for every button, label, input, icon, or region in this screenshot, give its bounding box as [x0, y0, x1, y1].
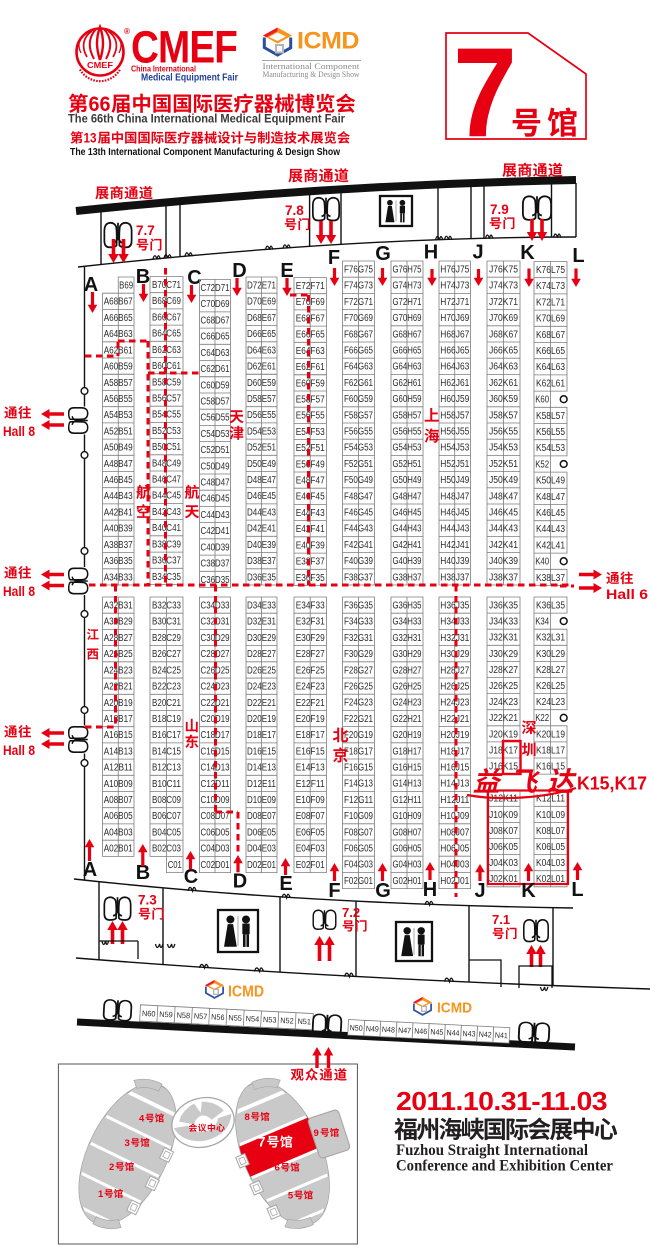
svg-text:N58: N58	[176, 1011, 190, 1021]
svg-text:J58K57: J58K57	[489, 410, 518, 421]
svg-text:J40K39: J40K39	[489, 556, 518, 567]
svg-text:K52: K52	[535, 459, 549, 470]
svg-text:E18F17: E18F17	[296, 730, 325, 741]
svg-text:K76L75: K76L75	[536, 265, 565, 276]
svg-text:D08E07: D08E07	[247, 811, 276, 822]
svg-text:F40G39: F40G39	[344, 556, 373, 567]
svg-text:ICMD: ICMD	[437, 1000, 472, 1017]
svg-text:J42K41: J42K41	[489, 540, 518, 551]
svg-text:7.8: 7.8	[285, 203, 304, 218]
svg-text:E: E	[279, 873, 292, 895]
svg-text:B30C31: B30C31	[152, 617, 181, 628]
svg-text:B18C19: B18C19	[152, 714, 181, 725]
svg-text:F: F	[328, 880, 340, 902]
svg-text:G70H69: G70H69	[393, 313, 422, 324]
svg-text:G30H29: G30H29	[393, 649, 422, 660]
svg-text:F68G67: F68G67	[344, 329, 373, 340]
svg-text:E44F43: E44F43	[296, 508, 325, 519]
svg-text:G74H73: G74H73	[393, 281, 422, 292]
svg-text:D52E51: D52E51	[247, 443, 276, 454]
svg-text:K60: K60	[535, 395, 549, 406]
svg-text:G46H45: G46H45	[393, 508, 422, 519]
svg-text:E10F09: E10F09	[296, 795, 325, 806]
svg-text:J20K19: J20K19	[489, 729, 518, 740]
svg-text:A32B31: A32B31	[104, 601, 133, 612]
svg-text:E36F35: E36F35	[296, 573, 325, 584]
svg-text:1: 1	[98, 1189, 104, 1200]
svg-text:F42G41: F42G41	[344, 540, 373, 551]
svg-text:J70K69: J70K69	[489, 313, 518, 324]
svg-text:K08L07: K08L07	[536, 826, 565, 837]
svg-text:C42D41: C42D41	[201, 526, 230, 537]
svg-text:G58H57: G58H57	[393, 410, 422, 421]
svg-text:C70D69: C70D69	[201, 299, 230, 310]
svg-text:9: 9	[314, 1128, 319, 1139]
svg-text:H42J41: H42J41	[440, 540, 469, 551]
svg-text:K72L71: K72L71	[536, 297, 565, 308]
svg-text:B04C05: B04C05	[152, 827, 181, 838]
svg-text:H66J65: H66J65	[440, 346, 469, 357]
svg-text:A64B63: A64B63	[104, 329, 133, 340]
svg-text:K20L19: K20L19	[536, 729, 565, 740]
svg-text:B16C17: B16C17	[152, 730, 181, 741]
svg-text:K: K	[521, 880, 536, 902]
svg-text:J64K63: J64K63	[489, 362, 518, 373]
svg-text:The 13th International Compone: The 13th International Component Manufac…	[70, 147, 341, 158]
svg-text:C40D39: C40D39	[201, 542, 230, 553]
svg-text:K64L63: K64L63	[536, 362, 565, 373]
svg-text:A28B27: A28B27	[104, 633, 133, 644]
svg-text:D18E17: D18E17	[247, 730, 276, 741]
svg-text:D68E67: D68E67	[247, 313, 276, 324]
svg-text:Medical Equipment Fair: Medical Equipment Fair	[141, 73, 238, 84]
svg-text:G24H23: G24H23	[393, 698, 422, 709]
svg-text:H: H	[424, 242, 438, 264]
svg-text:B14C15: B14C15	[152, 746, 181, 757]
svg-text:7.2: 7.2	[342, 905, 360, 920]
svg-text:F52G51: F52G51	[344, 459, 373, 470]
svg-text:7: 7	[453, 21, 517, 163]
svg-text:E40F39: E40F39	[296, 540, 325, 551]
svg-text:D66E65: D66E65	[247, 329, 276, 340]
svg-text:N43: N43	[462, 1029, 475, 1039]
svg-text:E68F67: E68F67	[296, 313, 325, 324]
svg-text:B10C11: B10C11	[152, 779, 181, 790]
svg-text:C72D71: C72D71	[201, 283, 230, 294]
svg-text:E54F53: E54F53	[296, 427, 325, 438]
svg-text:ICMD: ICMD	[228, 984, 264, 1001]
svg-text:F16G15: F16G15	[344, 763, 373, 774]
svg-text:A66B65: A66B65	[104, 313, 133, 324]
svg-text:D14E13: D14E13	[247, 763, 276, 774]
svg-text:F54G53: F54G53	[344, 443, 373, 454]
svg-text:D62E61: D62E61	[247, 362, 276, 373]
svg-text:A20B19: A20B19	[104, 698, 133, 709]
svg-text:D06E05: D06E05	[247, 827, 276, 838]
svg-text:B32C33: B32C33	[152, 601, 181, 612]
svg-text:C38D37: C38D37	[201, 559, 230, 570]
svg-text:D54E53: D54E53	[247, 426, 276, 437]
svg-text:A46B45: A46B45	[104, 475, 133, 486]
svg-text:D28E27: D28E27	[247, 649, 276, 660]
svg-text:K32L31: K32L31	[536, 633, 565, 644]
svg-text:D46E45: D46E45	[247, 491, 276, 502]
svg-text:N44: N44	[446, 1028, 460, 1038]
svg-text:J26K25: J26K25	[489, 681, 518, 692]
svg-text:®: ®	[124, 27, 130, 36]
svg-text:G28H27: G28H27	[393, 665, 422, 676]
svg-text:J54K53: J54K53	[489, 443, 518, 454]
svg-text:ICMD: ICMD	[297, 28, 359, 55]
svg-text:A52B51: A52B51	[104, 426, 133, 437]
svg-text:F20G19: F20G19	[344, 730, 373, 741]
svg-text:7.3: 7.3	[138, 893, 157, 908]
svg-text:A48B47: A48B47	[104, 459, 133, 470]
svg-text:7: 7	[258, 1135, 266, 1150]
svg-text:J08K07: J08K07	[489, 826, 518, 837]
svg-text:J36K35: J36K35	[489, 600, 518, 611]
svg-text:D16E15: D16E15	[247, 746, 276, 757]
svg-text:D32E31: D32E31	[247, 617, 276, 628]
svg-text:E32F31: E32F31	[296, 617, 325, 628]
svg-text:L: L	[571, 879, 583, 901]
svg-text:C66D65: C66D65	[201, 332, 230, 343]
svg-text:K40: K40	[535, 557, 549, 568]
svg-text:G76H75: G76H75	[393, 265, 422, 276]
svg-text:13: 13	[84, 130, 97, 146]
svg-text:K24L23: K24L23	[536, 697, 565, 708]
svg-text:G36H35: G36H35	[393, 601, 422, 612]
svg-text:K06L05: K06L05	[536, 842, 565, 853]
svg-text:A56B55: A56B55	[104, 394, 133, 405]
svg-text:H56J55: H56J55	[440, 427, 469, 438]
svg-text:L: L	[572, 245, 584, 267]
svg-text:A12B11: A12B11	[104, 763, 133, 774]
svg-text:E08F07: E08F07	[296, 811, 325, 822]
svg-text:N45: N45	[430, 1027, 444, 1037]
svg-text:D: D	[232, 260, 246, 282]
svg-text:J60K59: J60K59	[489, 394, 518, 405]
svg-text:Hall 8: Hall 8	[3, 743, 35, 758]
svg-text:E28F27: E28F27	[296, 649, 325, 660]
svg-text:J38K37: J38K37	[489, 572, 518, 583]
svg-text:E24F23: E24F23	[296, 682, 325, 693]
svg-text:F12G11: F12G11	[344, 795, 373, 806]
svg-text:E02F01: E02F01	[296, 860, 325, 871]
svg-text:K46L45: K46L45	[536, 508, 565, 519]
svg-text:H50J49: H50J49	[440, 475, 469, 486]
svg-text:D64E63: D64E63	[247, 345, 276, 356]
svg-text:B02C03: B02C03	[152, 844, 181, 855]
svg-text:7.7: 7.7	[136, 223, 155, 238]
svg-text:G12H11: G12H11	[393, 795, 422, 806]
svg-text:B22C23: B22C23	[152, 682, 181, 693]
svg-text:A50B49: A50B49	[104, 443, 133, 454]
svg-text:J10K09: J10K09	[489, 810, 518, 821]
svg-text:H58J57: H58J57	[440, 410, 469, 421]
svg-text:E26F25: E26F25	[296, 665, 325, 676]
svg-text:D22E21: D22E21	[247, 698, 276, 709]
svg-text:G66H65: G66H65	[393, 346, 422, 357]
svg-text:A16B15: A16B15	[104, 730, 133, 741]
svg-text:K34: K34	[535, 617, 549, 628]
svg-text:A02B01: A02B01	[104, 844, 133, 855]
svg-text:H74J73: H74J73	[440, 281, 469, 292]
svg-text:E66F65: E66F65	[296, 330, 325, 341]
svg-text:F56G55: F56G55	[344, 427, 373, 438]
svg-text:K26L25: K26L25	[536, 681, 565, 692]
svg-text:E12F11: E12F11	[296, 779, 325, 790]
svg-text:F18G17: F18G17	[344, 746, 373, 757]
svg-text:B26C27: B26C27	[152, 649, 181, 660]
svg-text:D56E55: D56E55	[247, 410, 276, 421]
svg-text:Hall 8: Hall 8	[3, 424, 35, 439]
svg-text:F10G09: F10G09	[344, 811, 373, 822]
svg-text:J68K67: J68K67	[489, 329, 518, 340]
svg-text:Manufacturing & Design Show: Manufacturing & Design Show	[263, 69, 361, 79]
svg-text:N55: N55	[228, 1013, 243, 1023]
svg-text:C68D67: C68D67	[201, 315, 230, 326]
svg-text:N53: N53	[263, 1015, 277, 1025]
svg-text:J50K49: J50K49	[489, 475, 518, 486]
svg-text:E04F03: E04F03	[296, 844, 325, 855]
svg-text:F24G23: F24G23	[344, 698, 373, 709]
svg-text:H44J43: H44J43	[440, 524, 469, 535]
svg-text:E60F59: E60F59	[296, 378, 325, 389]
svg-text:G02H01: G02H01	[393, 876, 422, 887]
svg-text:G48H47: G48H47	[393, 491, 422, 502]
svg-text:F34G33: F34G33	[344, 617, 373, 628]
svg-text:A42B41: A42B41	[104, 507, 133, 518]
svg-text:F08G07: F08G07	[344, 827, 373, 838]
svg-text:B12C13: B12C13	[152, 763, 181, 774]
svg-text:G06H05: G06H05	[393, 844, 422, 855]
svg-text:A54B53: A54B53	[104, 410, 133, 421]
svg-text:B24C25: B24C25	[152, 665, 181, 676]
svg-text:H70J69: H70J69	[440, 313, 469, 324]
svg-text:D12E11: D12E11	[247, 779, 276, 790]
svg-text:E42F41: E42F41	[296, 524, 325, 535]
svg-text:A08B07: A08B07	[104, 795, 133, 806]
svg-text:G34H33: G34H33	[393, 617, 422, 628]
svg-text:K66L65: K66L65	[536, 346, 565, 357]
svg-text:H: H	[423, 879, 437, 901]
svg-text:C44D43: C44D43	[201, 510, 230, 521]
svg-text:C58D57: C58D57	[201, 397, 230, 408]
svg-text:G42H41: G42H41	[393, 540, 422, 551]
svg-text:G: G	[375, 880, 391, 902]
svg-text:K50L49: K50L49	[536, 476, 565, 487]
svg-text:G52H51: G52H51	[393, 459, 422, 470]
svg-text:H60J59: H60J59	[440, 394, 469, 405]
svg-text:K18L17: K18L17	[536, 745, 565, 756]
svg-text:F62G61: F62G61	[344, 378, 373, 389]
svg-text:N57: N57	[194, 1012, 208, 1022]
svg-text:E72F71: E72F71	[296, 281, 325, 292]
svg-text:D42E41: D42E41	[247, 524, 276, 535]
svg-text:D02E01: D02E01	[247, 860, 276, 871]
svg-text:E16F15: E16F15	[296, 746, 325, 757]
svg-text:E14F13: E14F13	[296, 763, 325, 774]
svg-text:H40J39: H40J39	[440, 556, 469, 567]
svg-text:J66K65: J66K65	[489, 346, 518, 357]
svg-text:B28C29: B28C29	[152, 633, 181, 644]
svg-text:D30E29: D30E29	[247, 633, 276, 644]
svg-text:E62F61: E62F61	[296, 362, 325, 373]
svg-text:A04B03: A04B03	[104, 827, 133, 838]
svg-text:F48G47: F48G47	[344, 491, 373, 502]
svg-text:E52F51: E52F51	[296, 443, 325, 454]
svg-text:E34F33: E34F33	[296, 601, 325, 612]
svg-text:J06K05: J06K05	[489, 842, 518, 853]
svg-text:F76G75: F76G75	[344, 265, 373, 276]
svg-text:G62H61: G62H61	[393, 378, 422, 389]
svg-text:J72K71: J72K71	[489, 297, 518, 308]
svg-text:N42: N42	[478, 1030, 491, 1040]
svg-text:F38G37: F38G37	[344, 572, 373, 583]
svg-text:H76J75: H76J75	[440, 265, 469, 276]
svg-text:E20F19: E20F19	[296, 714, 325, 725]
svg-text:J62K61: J62K61	[489, 378, 518, 389]
svg-text:K28L27: K28L27	[536, 665, 565, 676]
svg-text:F04G03: F04G03	[344, 860, 373, 871]
svg-text:F22G21: F22G21	[344, 714, 373, 725]
svg-text:C04D03: C04D03	[201, 844, 230, 855]
svg-text:F28G27: F28G27	[344, 665, 373, 676]
svg-text:H54J53: H54J53	[440, 443, 469, 454]
svg-text:J56K55: J56K55	[489, 427, 518, 438]
svg-text:K30L29: K30L29	[536, 649, 565, 660]
svg-text:C08D07: C08D07	[201, 811, 230, 822]
svg-text:N50: N50	[349, 1023, 363, 1033]
svg-text:A36B35: A36B35	[104, 556, 133, 567]
svg-text:A26B25: A26B25	[104, 649, 133, 660]
svg-text:8: 8	[245, 1112, 250, 1123]
svg-text:N41: N41	[495, 1031, 508, 1041]
svg-text:C56D55: C56D55	[201, 413, 230, 424]
svg-text:2011.10.31-11.03: 2011.10.31-11.03	[396, 1086, 607, 1116]
svg-text:A06B05: A06B05	[104, 811, 133, 822]
svg-text:C60D59: C60D59	[201, 380, 230, 391]
svg-text:C62D61: C62D61	[201, 364, 230, 375]
svg-text:C64D63: C64D63	[201, 348, 230, 359]
svg-text:B20C21: B20C21	[152, 698, 181, 709]
svg-text:J28K27: J28K27	[489, 665, 518, 676]
svg-text:F66G65: F66G65	[344, 346, 373, 357]
svg-text:B06C07: B06C07	[152, 811, 181, 822]
svg-text:J30K29: J30K29	[489, 649, 518, 660]
svg-text:J44K43: J44K43	[489, 524, 518, 535]
svg-text:G54H53: G54H53	[393, 443, 422, 454]
svg-text:G32H31: G32H31	[393, 633, 422, 644]
svg-text:G44H43: G44H43	[393, 524, 422, 535]
svg-text:D20E19: D20E19	[247, 714, 276, 725]
svg-text:F14G13: F14G13	[344, 779, 373, 790]
svg-text:A18B17: A18B17	[104, 714, 133, 725]
svg-text:J34K33: J34K33	[489, 617, 518, 628]
svg-text:G60H59: G60H59	[393, 394, 422, 405]
svg-text:E48F47: E48F47	[296, 476, 325, 487]
svg-text:E58F57: E58F57	[296, 395, 325, 406]
svg-text:K: K	[520, 242, 535, 264]
svg-text:C52D51: C52D51	[201, 445, 230, 456]
svg-text:G22H21: G22H21	[393, 714, 422, 725]
svg-text:J74K73: J74K73	[489, 281, 518, 292]
svg-text:F58G57: F58G57	[344, 410, 373, 421]
svg-text:N56: N56	[211, 1012, 225, 1022]
svg-text:6: 6	[275, 1163, 280, 1174]
svg-text:K15,K17: K15,K17	[577, 773, 647, 794]
svg-text:E50F49: E50F49	[296, 459, 325, 470]
svg-text:G68H67: G68H67	[393, 329, 422, 340]
svg-text:H52J51: H52J51	[440, 459, 469, 470]
svg-text:K56L55: K56L55	[536, 427, 565, 438]
svg-text:K38L37: K38L37	[536, 573, 565, 584]
svg-text:Hall 8: Hall 8	[3, 584, 35, 599]
svg-text:D24E23: D24E23	[247, 682, 276, 693]
svg-text:D70E69: D70E69	[247, 297, 276, 308]
svg-text:N51: N51	[297, 1017, 311, 1027]
svg-text:C02D01: C02D01	[201, 860, 230, 871]
svg-text:Conference and Exhibition Cent: Conference and Exhibition Center	[396, 1158, 613, 1175]
svg-text:F: F	[328, 247, 340, 269]
svg-text:Hall 6: Hall 6	[606, 587, 649, 602]
svg-text:H64J63: H64J63	[440, 362, 469, 373]
svg-text:G10H09: G10H09	[393, 811, 422, 822]
svg-text:2: 2	[109, 1162, 114, 1173]
svg-text:D34E33: D34E33	[247, 601, 276, 612]
svg-text:N47: N47	[398, 1026, 411, 1036]
svg-text:F30G29: F30G29	[344, 649, 373, 660]
svg-text:G08H07: G08H07	[393, 827, 422, 838]
svg-text:G26H25: G26H25	[393, 682, 422, 693]
svg-text:J48K47: J48K47	[489, 491, 518, 502]
svg-text:A58B57: A58B57	[104, 378, 133, 389]
svg-text:C01: C01	[168, 860, 182, 871]
svg-text:E06F05: E06F05	[296, 827, 325, 838]
svg-text:N54: N54	[245, 1014, 260, 1024]
svg-text:A30B29: A30B29	[104, 617, 133, 628]
svg-text:B08C09: B08C09	[152, 795, 181, 806]
svg-text:N59: N59	[159, 1010, 173, 1020]
svg-text:A10B09: A10B09	[104, 779, 133, 790]
svg-text:D36E35: D36E35	[247, 572, 276, 583]
svg-text:A38B37: A38B37	[104, 540, 133, 551]
svg-text:D04E03: D04E03	[247, 844, 276, 855]
svg-text:F46G45: F46G45	[344, 508, 373, 519]
svg-text:C46D45: C46D45	[201, 494, 230, 505]
svg-text:D58E57: D58E57	[247, 394, 276, 405]
svg-text:K16L15: K16L15	[536, 762, 565, 773]
svg-text:G20H19: G20H19	[393, 730, 422, 741]
svg-text:5: 5	[288, 1191, 294, 1202]
svg-text:G16H15: G16H15	[393, 763, 422, 774]
svg-text:K04L03: K04L03	[536, 858, 565, 869]
svg-text:C48D47: C48D47	[201, 478, 230, 489]
svg-text:D50E49: D50E49	[247, 459, 276, 470]
svg-text:D60E59: D60E59	[247, 378, 276, 389]
svg-text:J: J	[474, 880, 485, 902]
svg-text:F74G73: F74G73	[344, 281, 373, 292]
svg-text:J46K45: J46K45	[489, 508, 518, 519]
svg-text:F70G69: F70G69	[344, 313, 373, 324]
svg-text:A68B67: A68B67	[104, 297, 133, 308]
svg-text:G04H03: G04H03	[393, 860, 422, 871]
svg-text:J22K21: J22K21	[489, 713, 518, 724]
svg-text:3: 3	[125, 1138, 130, 1149]
svg-text:7.9: 7.9	[490, 202, 509, 217]
svg-text:The 66th China International M: The 66th China International Medical Equ…	[68, 112, 345, 126]
